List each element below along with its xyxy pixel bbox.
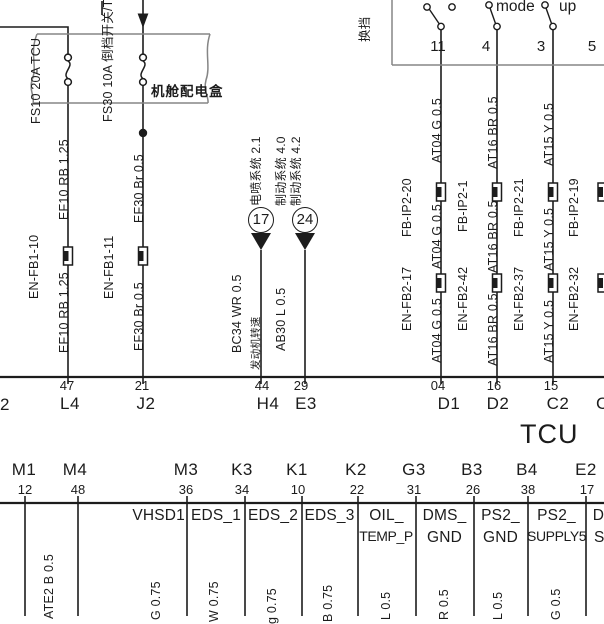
wire-seg-label: AB30 L 0.5 (274, 277, 289, 351)
tcu-pin-number: 48 (65, 483, 91, 497)
offpage-ref-24: 24 (292, 207, 318, 233)
wire-seg-label: ATE1 B 1.25 (0, 537, 4, 617)
signal-name: GND (475, 529, 526, 546)
wire-seg-label: AT15 Y 0.5 (542, 203, 557, 271)
fuse-fs10-label: FS10 20A TCU (29, 39, 44, 124)
wire-seg-label: g 0.75 (265, 576, 280, 624)
mode-switch-label: mode (496, 0, 548, 15)
signal-name: OIL_ (359, 507, 414, 524)
splice-id-label: EN-FB2-37 (512, 247, 527, 331)
tcu-pin-number: 44 (249, 379, 275, 393)
tcu-pin-number: 47 (54, 379, 80, 393)
tcu-pin-name: C2 (543, 395, 573, 414)
signal-name: SUPPLY5 (527, 529, 585, 544)
tcu-pin-name: E2 (571, 461, 601, 480)
tcu-pin-number: 31 (401, 483, 427, 497)
tcu-pin-name: M3 (171, 461, 201, 480)
splice-id-label: FB-IP2-20 (400, 151, 415, 237)
tcu-device-label: TCU (520, 420, 580, 450)
signal-name: EDS_2 (247, 507, 299, 524)
signal-name: VHSD1 (120, 507, 185, 524)
tcu-pin-number: 29 (288, 379, 314, 393)
tcu-pin-number: 21 (129, 379, 155, 393)
tcu-pin-number: 34 (229, 483, 255, 497)
panel-pin: 5 (584, 39, 600, 56)
wire-seg-label: EF10 RB 1.25 (57, 265, 72, 353)
wire-seg-label: EF10 RB 1.25 (57, 132, 72, 220)
signal-name: EDS_1 (189, 507, 243, 524)
wire-seg-label: B 0.75 (321, 574, 336, 622)
tcu-pin-name: D2 (483, 395, 513, 414)
tcu-pin-number: 04 (425, 379, 451, 393)
splice-id-label: FB-IP2-1 (456, 158, 471, 232)
wire-seg-label: G 0.75 (149, 570, 164, 620)
signal-name: EDS_3 (304, 507, 355, 524)
panel-pin: 11 (428, 39, 448, 56)
tcu-pin-number: 38 (515, 483, 541, 497)
shift-panel-edge-label: 换挡 (358, 0, 373, 42)
signal-name: GND (417, 529, 472, 546)
signal-name: PS2_ (475, 507, 526, 524)
wire-seg-label: EF30 Br 0.5 (132, 271, 147, 351)
splice-id-label: EN-FB2-17 (400, 245, 415, 331)
signal-name: DMS_ (417, 507, 472, 524)
tcu-pin-name: H4 (253, 395, 283, 414)
signal-name-partial: DM (590, 507, 604, 524)
tcu-pin-name: L4 (55, 395, 85, 414)
splice-id-label: EN-FB2-42 (456, 245, 471, 331)
wire-seg-label: AT15 Y 0.5 (542, 293, 557, 363)
tcu-pin-number: 12 (12, 483, 38, 497)
wire-seg-label: G 0.5 (549, 580, 564, 620)
tcu-pin-number: 15 (538, 379, 564, 393)
tcu-pin-number: 22 (344, 483, 370, 497)
tcu-pin-name: K2 (341, 461, 371, 480)
power-box-label: 机舱配电盒 (151, 85, 219, 100)
wire-seg-label: L 0.5 (379, 580, 394, 620)
wire-seg-label: L 0.5 (491, 580, 506, 620)
tcu-pin-name: K1 (282, 461, 312, 480)
fuse-fs30 (140, 54, 147, 85)
system-ref-label: 制动系统 4.0 (274, 136, 289, 206)
tcu-pin-name: J2 (131, 395, 161, 414)
system-ref-label: 制动系统 4.2 (289, 136, 304, 206)
fuse-fs30-label: FS30 10A 倒档开关/TCU (101, 0, 116, 122)
junction-dot (139, 129, 147, 137)
wire-seg-label: AT16 BR 0.5 (486, 89, 501, 169)
wire-seg-label: AT04 G 0.5 (430, 203, 445, 269)
wire-seg-label: AT16 BR 0.5 (486, 290, 501, 366)
tcu-pin-number: 26 (460, 483, 486, 497)
wire-seg-label: AT15 Y 0.5 (542, 92, 557, 166)
panel-pin: 4 (478, 39, 494, 56)
tcu-pin-number: 10 (285, 483, 311, 497)
splice-id-label: FB-IP2-21 (512, 153, 527, 237)
panel-pin: 3 (533, 39, 549, 56)
tcu-pin-number: 16 (481, 379, 507, 393)
splice-id-label: EN-FB1-10 (27, 214, 42, 299)
signal-name: PS2_ (529, 507, 584, 524)
signal-name: TEMP_P (357, 529, 415, 544)
tcu-pin-name: K3 (227, 461, 257, 480)
tcu-pin-name: B4 (512, 461, 542, 480)
tcu-pin-name: B3 (457, 461, 487, 480)
tcu-pin-name-partial: 2 (0, 396, 14, 415)
wire-seg-label: R 0.5 (437, 580, 452, 620)
wire-seg-label: AT04 G 0.5 (430, 293, 445, 363)
wire-seg-label: EF30 Br 0.5 (132, 145, 147, 223)
fuse-fs10 (65, 54, 72, 85)
offpage-arrow-17-icon (251, 233, 271, 250)
wire-seg-label: ATE2 B 0.5 (42, 547, 57, 619)
tcu-pin-name: E3 (291, 395, 321, 414)
tcu-pin-name-partial: C (596, 395, 604, 414)
splice-id-label: EN-FB1-11 (102, 214, 117, 299)
tcu-pin-number: 36 (173, 483, 199, 497)
up-switch-label: up (559, 0, 585, 15)
tcu-pin-name: M4 (60, 461, 90, 480)
tcu-pin-name: D1 (434, 395, 464, 414)
signal-name-label: 发动机转速 (250, 310, 263, 370)
flow-arrow-icon (138, 14, 149, 29)
offpage-ref-17: 17 (248, 207, 274, 233)
splice-id-label: EN-FB2-32 (567, 247, 582, 331)
splice-id-label: FB-IP2-19 (567, 153, 582, 237)
offpage-arrow-24-icon (295, 233, 315, 250)
wire-seg-label: AT16 BR 0.5 (486, 201, 501, 273)
tcu-pin-number: 17 (574, 483, 600, 497)
signal-name-partial: SU (590, 529, 604, 546)
wiring-diagram-page: { "colors": { "ink": "#1c1c1c", "box_out… (0, 0, 604, 616)
wire-seg-label: AT04 G 0.5 (430, 89, 445, 163)
tcu-pin-name: M1 (9, 461, 39, 480)
wire-seg-label: BC34 WR 0.5 (230, 271, 245, 353)
tcu-pin-name: G3 (399, 461, 429, 480)
wire-seg-label: W 0.75 (207, 572, 222, 622)
system-ref-label: 电喷系统 2.1 (249, 136, 264, 206)
